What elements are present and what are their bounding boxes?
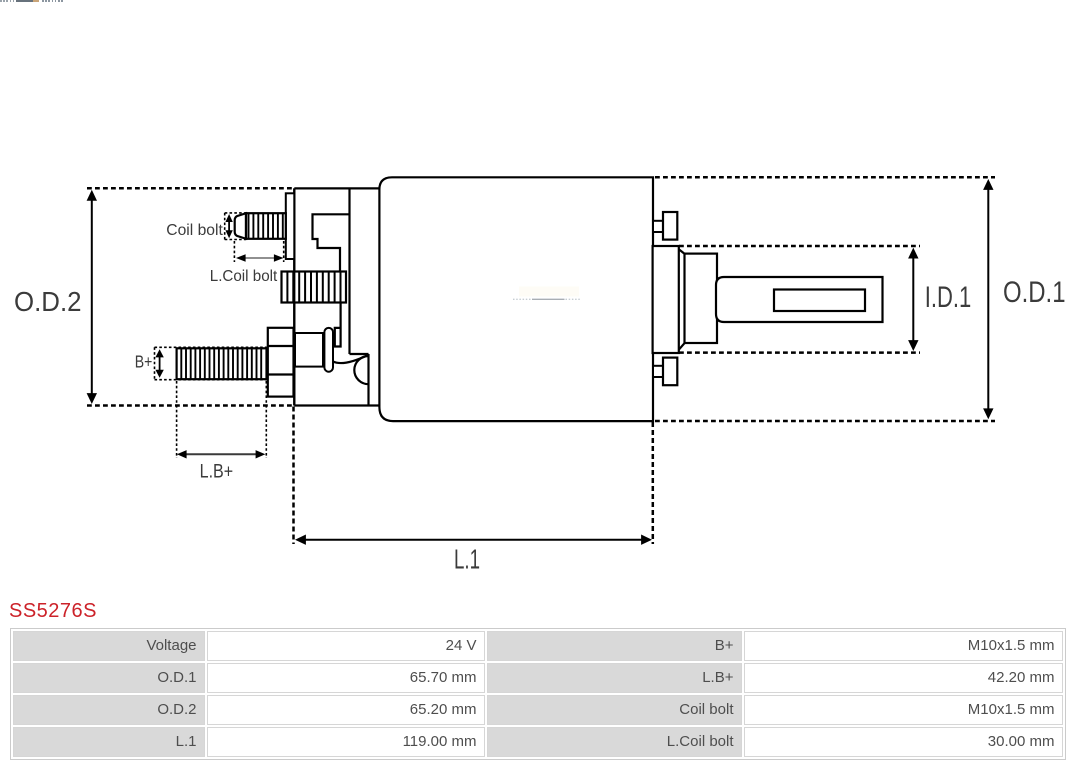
svg-text:Coil bolt: Coil bolt — [166, 222, 223, 239]
svg-text:O.D.1: O.D.1 — [1003, 276, 1066, 309]
svg-text:L.Coil bolt: L.Coil bolt — [210, 268, 278, 285]
svg-text:O.D.2: O.D.2 — [14, 286, 82, 317]
svg-text:L.1: L.1 — [454, 544, 480, 575]
svg-text:B+: B+ — [135, 351, 153, 371]
svg-text:L.B+: L.B+ — [200, 462, 234, 483]
svg-text:I.D.1: I.D.1 — [925, 281, 972, 314]
